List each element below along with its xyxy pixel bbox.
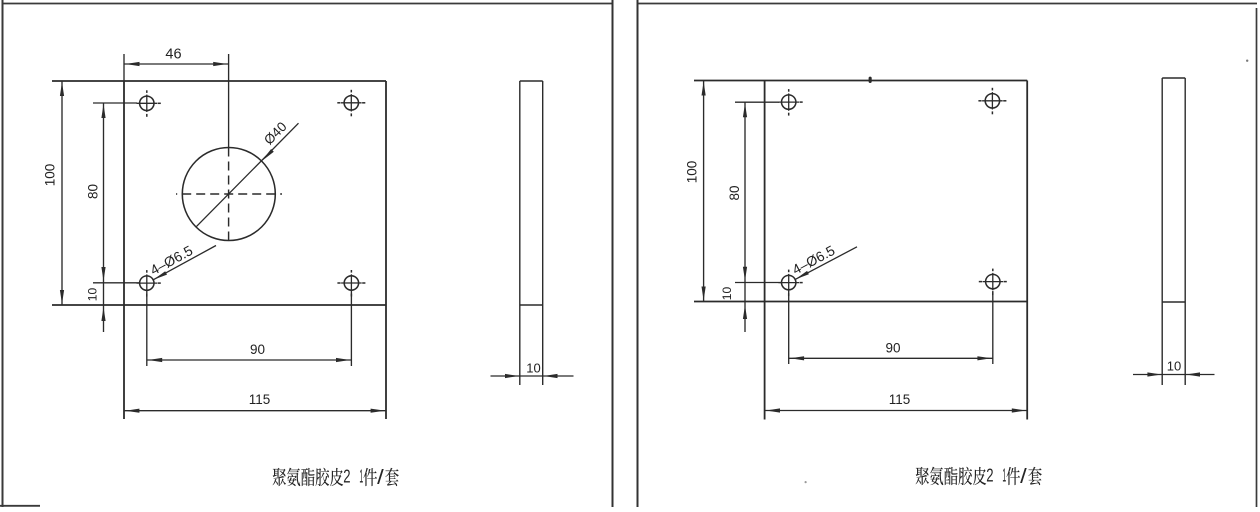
svg-text:10: 10 (1167, 359, 1181, 374)
svg-text:/: / (1020, 466, 1027, 488)
svg-text:10: 10 (526, 360, 540, 375)
svg-text:2: 2 (986, 466, 993, 486)
svg-text:80: 80 (727, 185, 742, 200)
svg-text:100: 100 (685, 161, 700, 184)
svg-text:/: / (377, 467, 384, 489)
svg-text:80: 80 (86, 184, 101, 199)
svg-text:100: 100 (43, 164, 58, 187)
svg-text:10: 10 (86, 288, 100, 302)
svg-text:46: 46 (165, 47, 181, 63)
svg-text:2: 2 (343, 467, 350, 487)
svg-text:1: 1 (359, 467, 363, 487)
svg-text:10: 10 (720, 287, 734, 301)
svg-text:90: 90 (250, 342, 265, 357)
svg-text:115: 115 (889, 392, 911, 407)
svg-text:115: 115 (249, 392, 271, 407)
svg-text:1: 1 (1002, 466, 1006, 486)
svg-text:90: 90 (885, 340, 900, 355)
